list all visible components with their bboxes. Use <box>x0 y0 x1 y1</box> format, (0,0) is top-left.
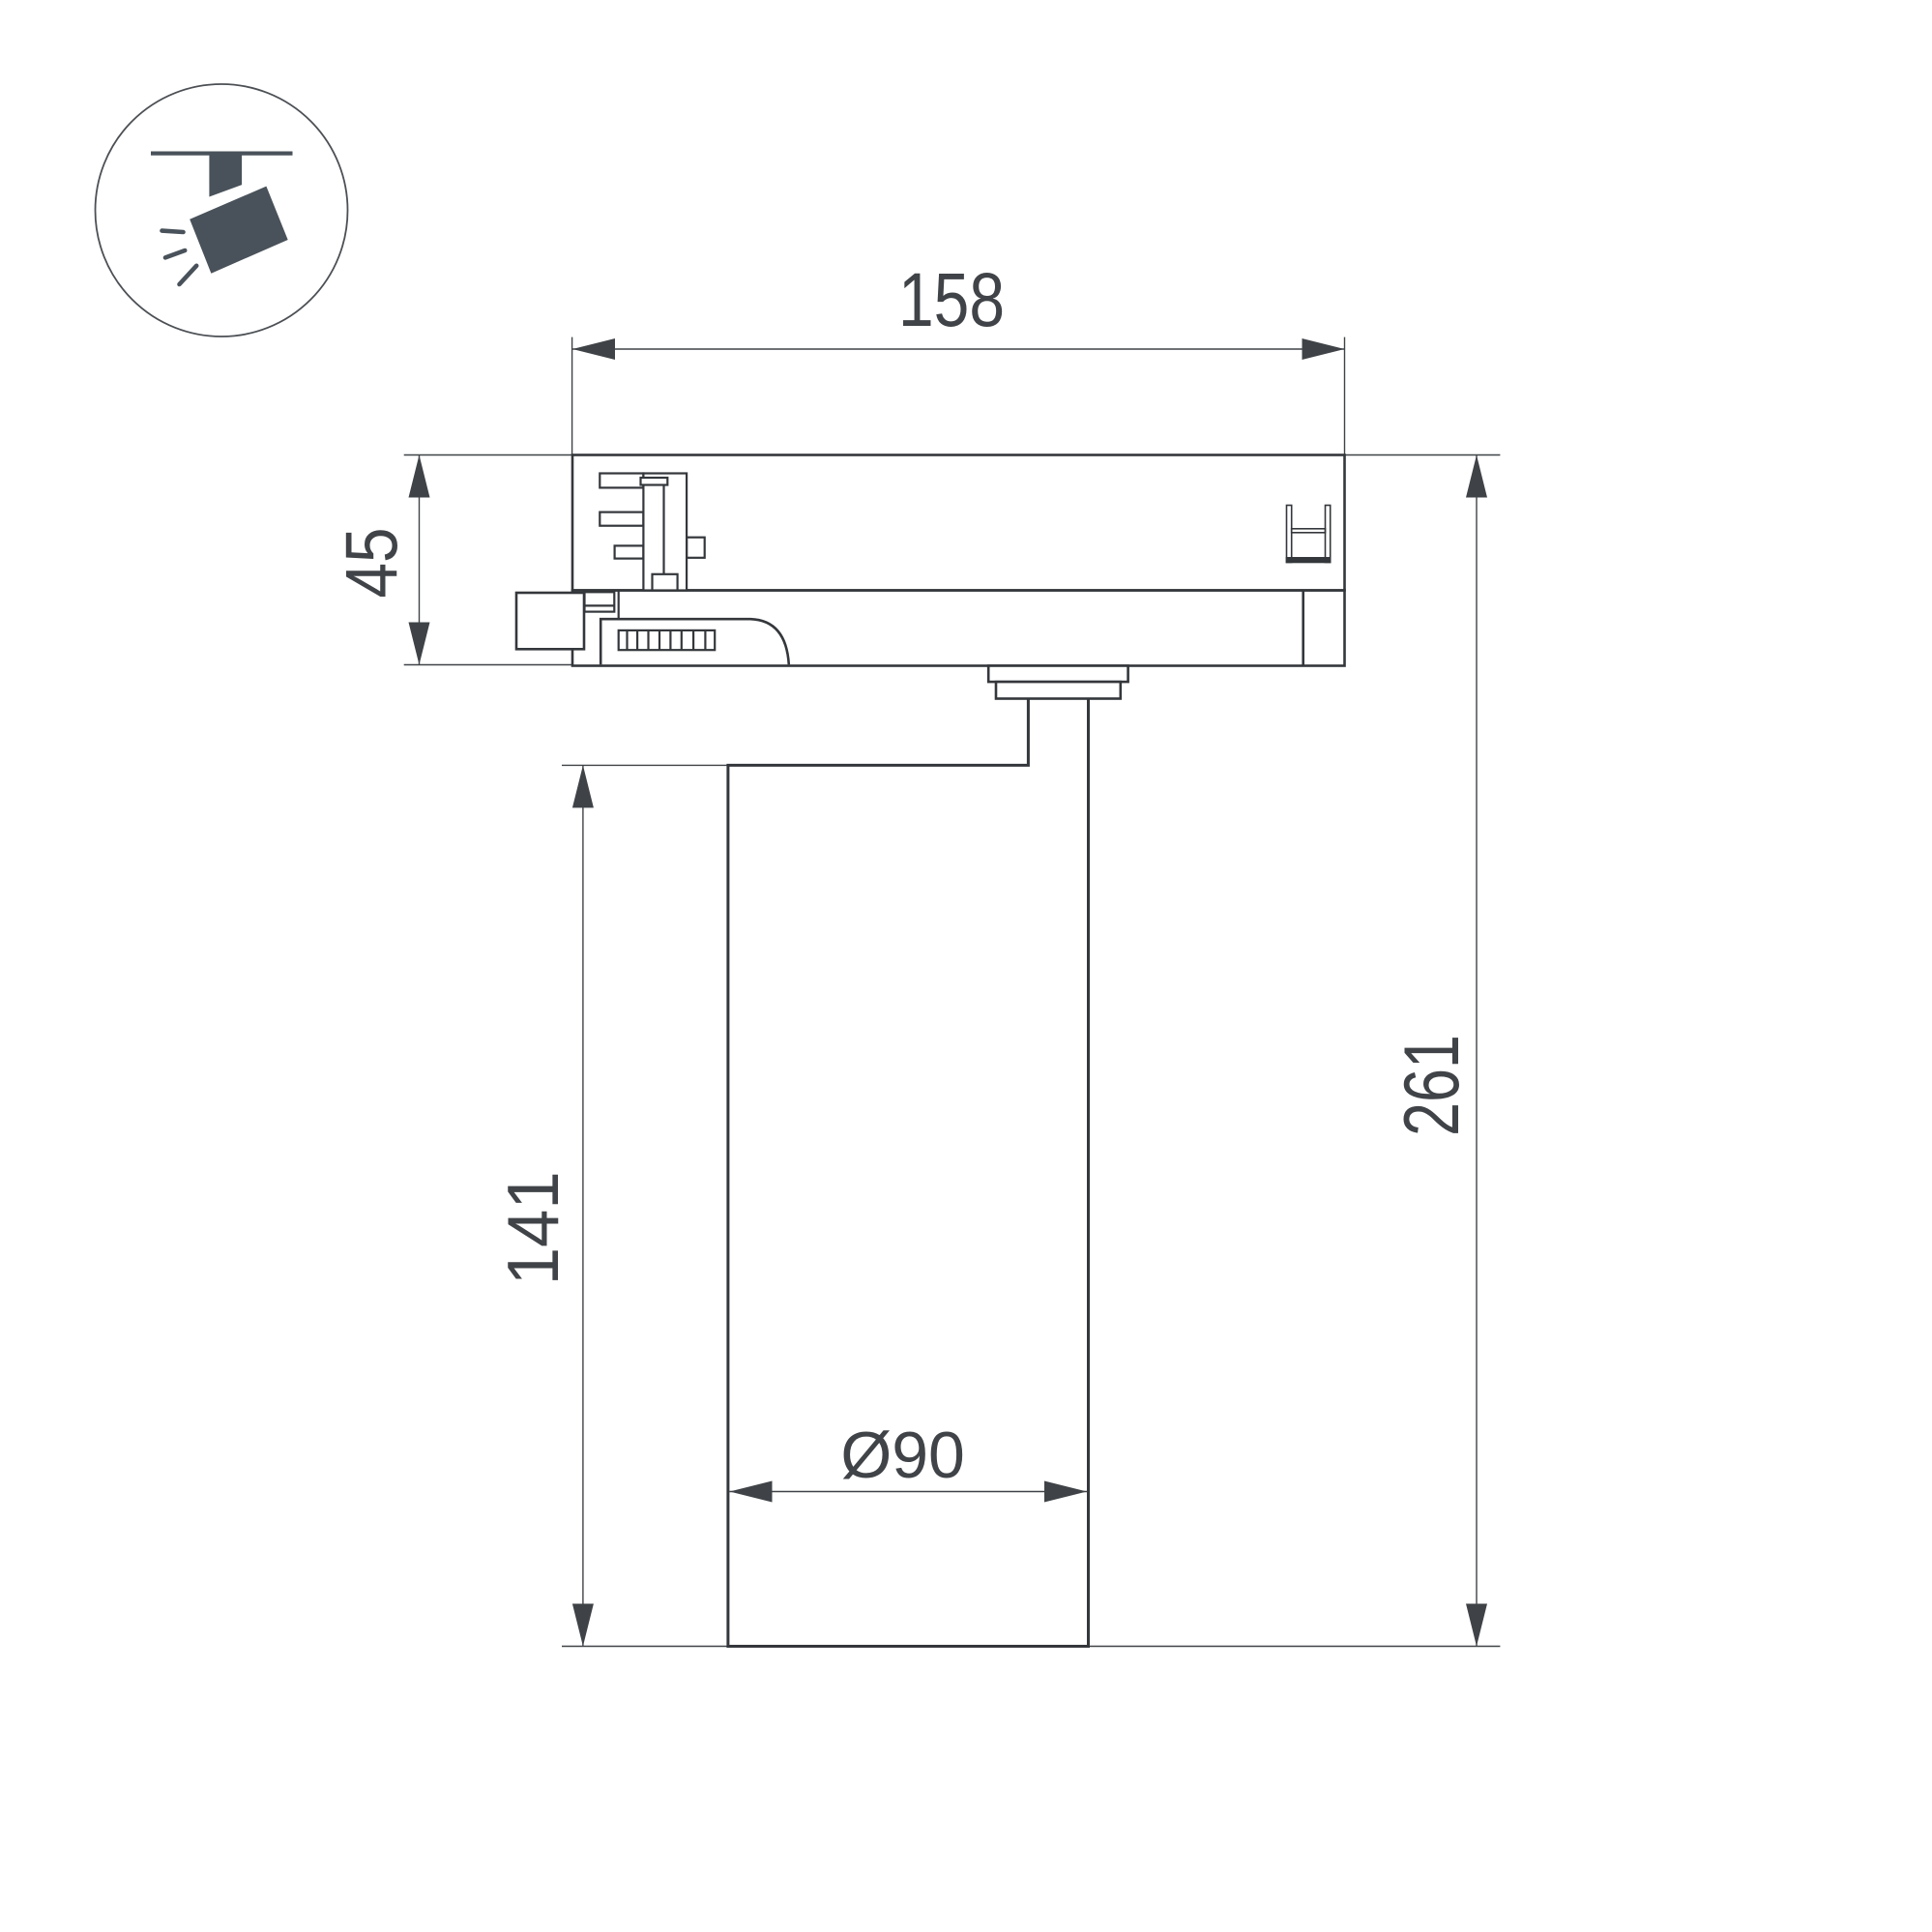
svg-text:Ø90: Ø90 <box>840 1419 965 1492</box>
svg-text:158: 158 <box>898 256 1005 342</box>
svg-text:261: 261 <box>1389 1035 1476 1136</box>
svg-text:45: 45 <box>332 528 414 599</box>
svg-text:141: 141 <box>492 1171 573 1285</box>
